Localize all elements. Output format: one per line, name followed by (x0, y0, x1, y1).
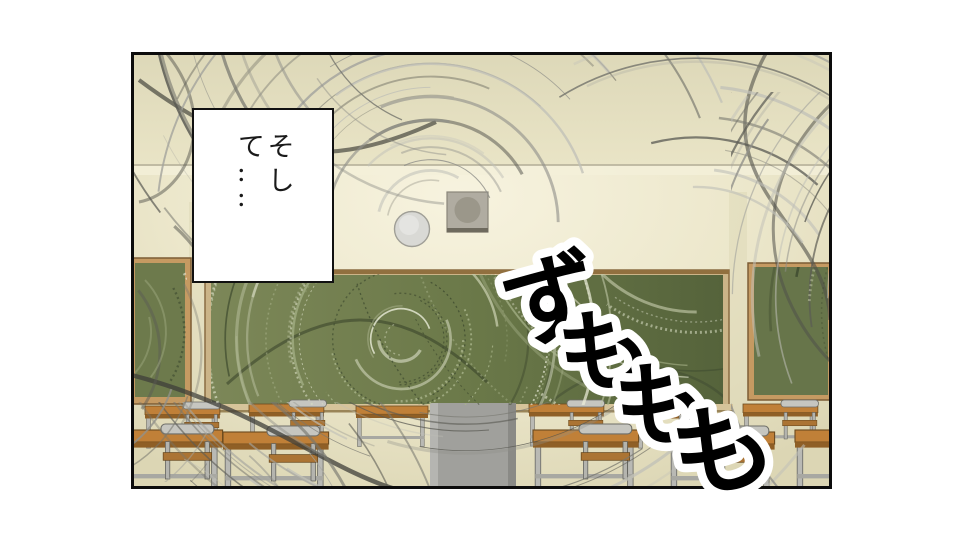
wall-clock (395, 212, 430, 247)
manga-page: そして‥‥ ず も も も (0, 0, 960, 540)
main-chalkboard (201, 270, 733, 413)
manga-panel: そして‥‥ (131, 52, 832, 489)
side-board-left (131, 258, 191, 404)
narration-box: そして‥‥ (192, 108, 334, 283)
wall-speaker (447, 192, 488, 233)
narration-text: そして‥‥ (233, 110, 292, 281)
side-board-right (748, 263, 832, 400)
teacher-podium (430, 403, 516, 489)
